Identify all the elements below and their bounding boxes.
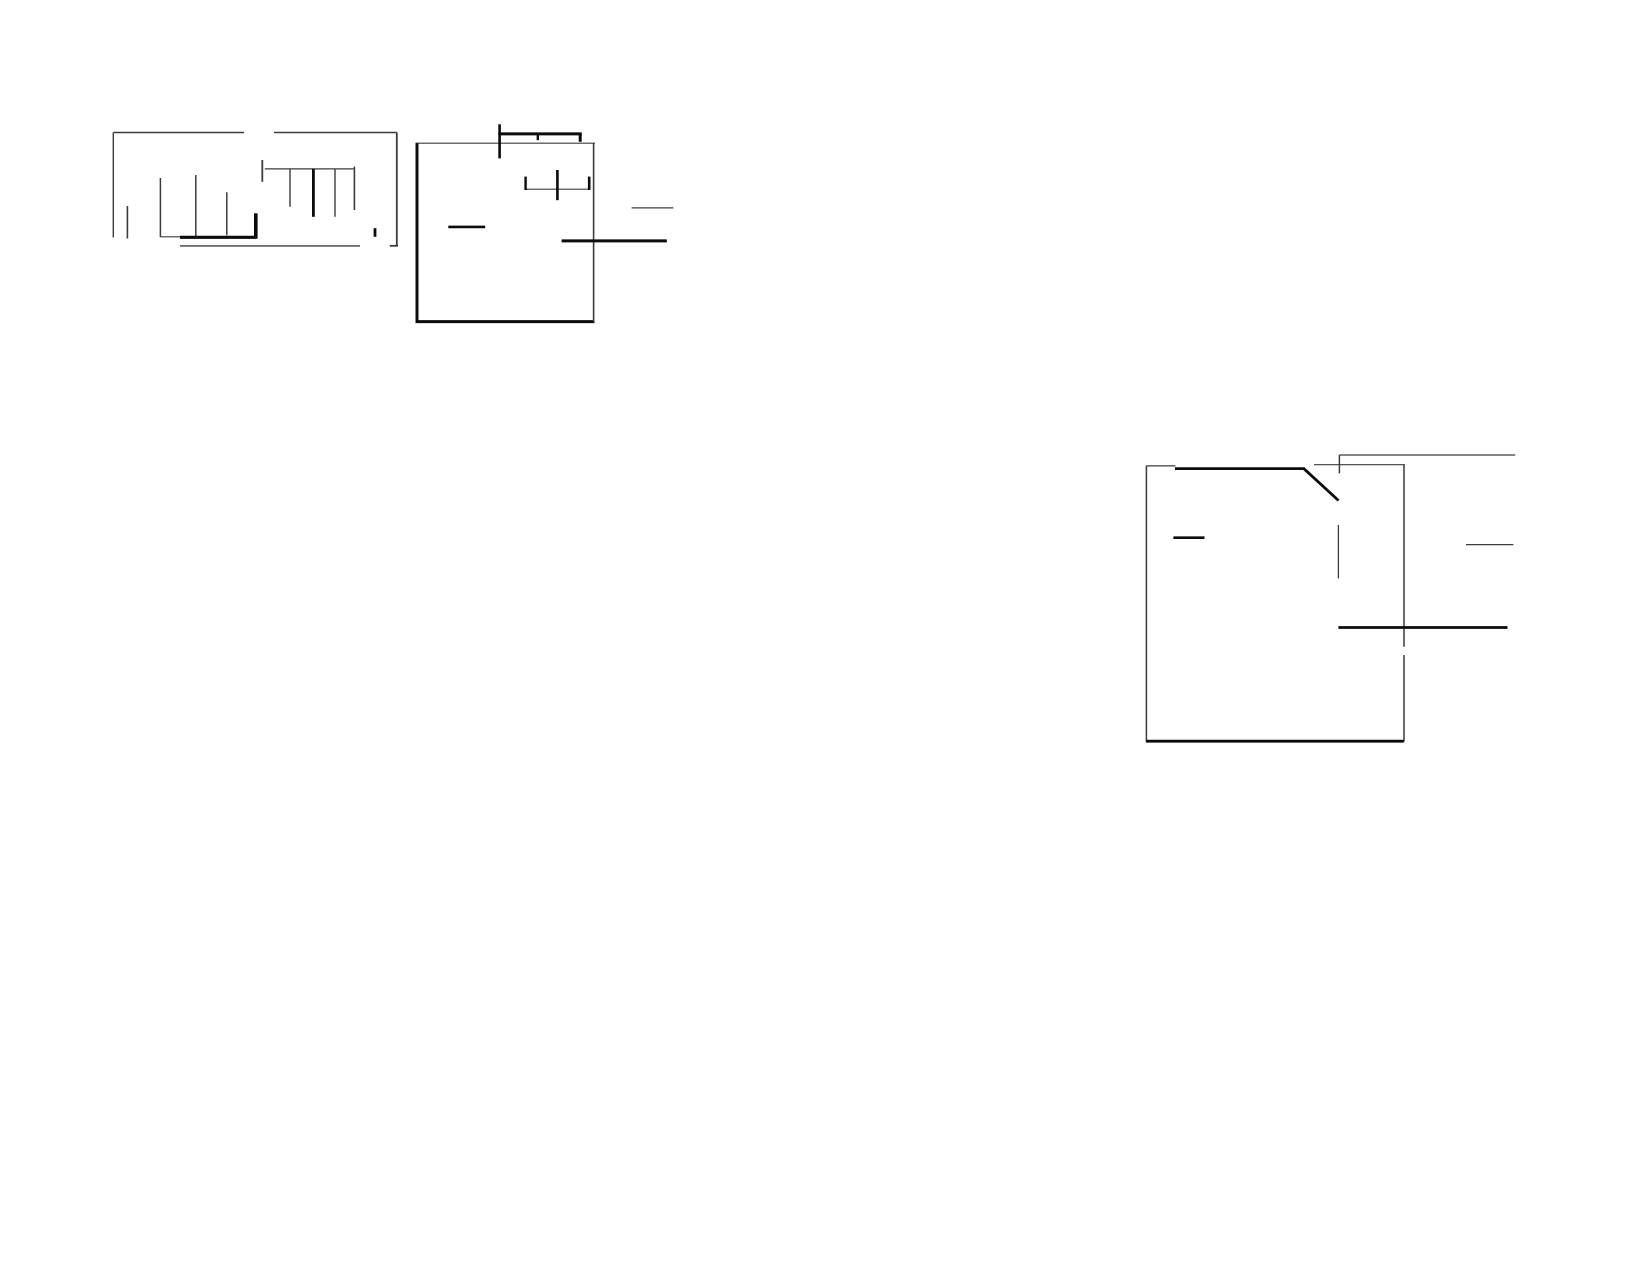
line-fragment-drawing <box>0 0 1650 1275</box>
top-center-fragment <box>416 124 674 322</box>
blank-scan-page <box>0 0 1650 1275</box>
right-fragment <box>1146 455 1515 742</box>
top-left-fragment <box>113 133 398 247</box>
right-fragment-diagonal-stroke <box>1304 468 1339 500</box>
